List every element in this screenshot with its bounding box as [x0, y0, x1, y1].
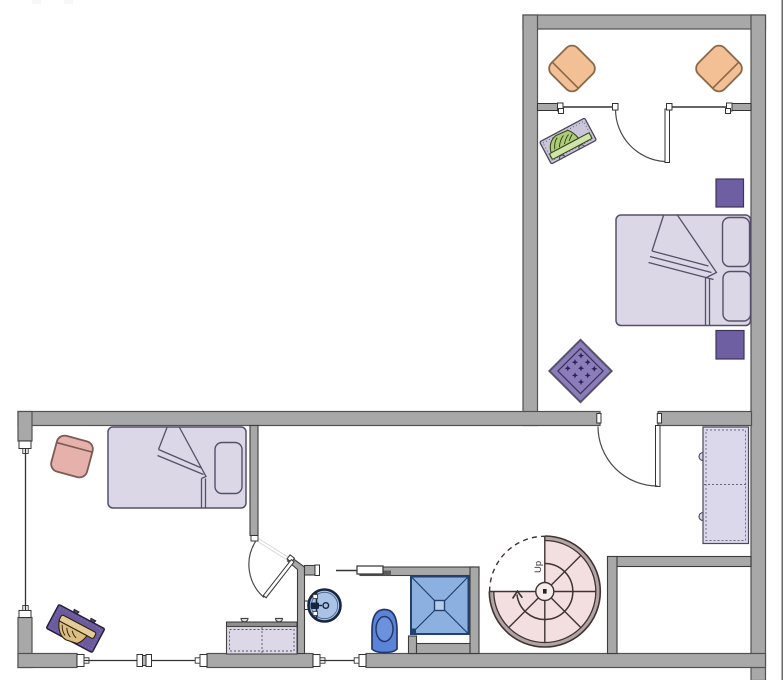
svg-text:Up: Up: [533, 561, 544, 573]
